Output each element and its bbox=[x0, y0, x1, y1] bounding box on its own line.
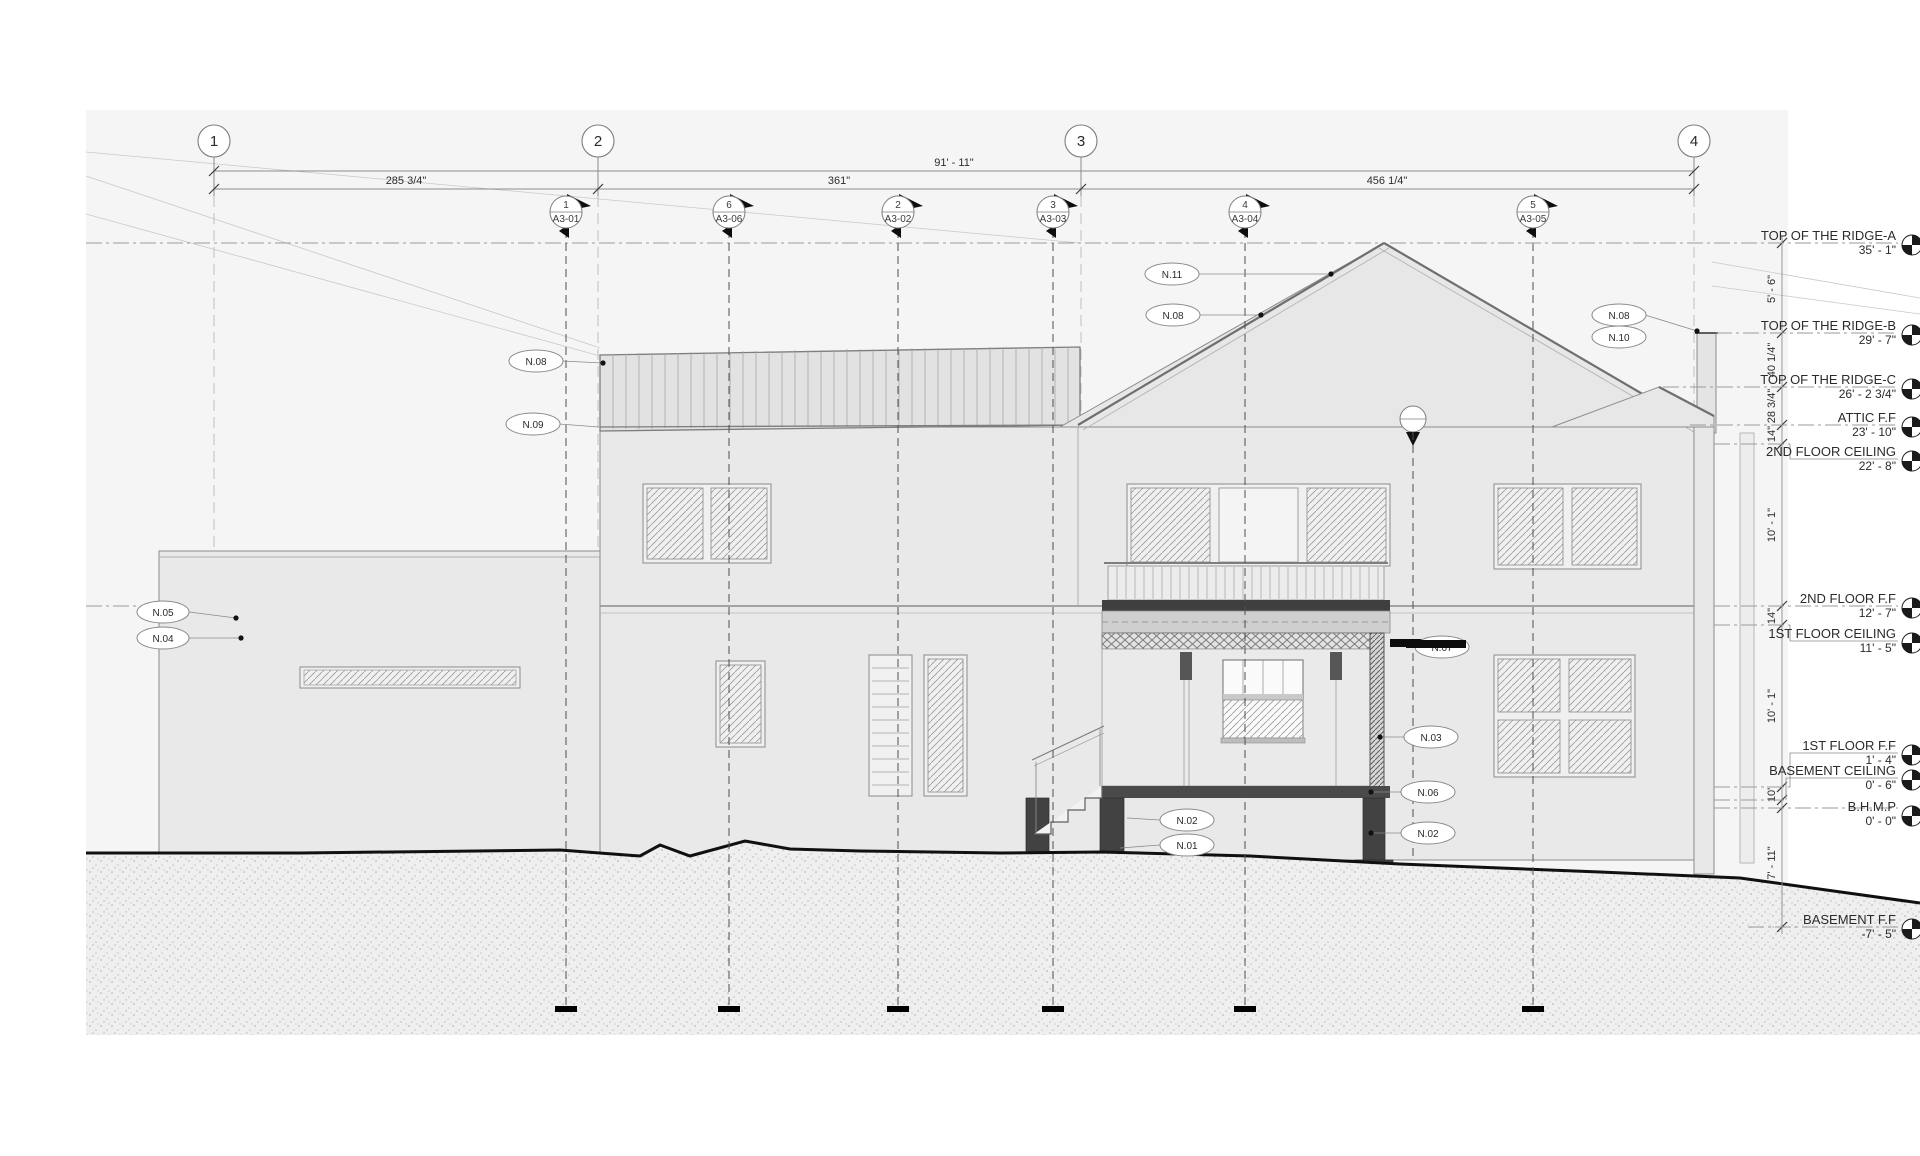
level-target-icon bbox=[1902, 745, 1920, 765]
svg-text:N.05: N.05 bbox=[152, 608, 174, 619]
level-target-icon bbox=[1902, 633, 1920, 653]
level-target-icon bbox=[1902, 806, 1920, 826]
svg-text:N.03: N.03 bbox=[1420, 733, 1442, 744]
svg-text:ATTIC F.F: ATTIC F.F bbox=[1838, 410, 1896, 425]
svg-text:3: 3 bbox=[1050, 200, 1056, 211]
window-1st-left bbox=[716, 661, 765, 747]
elevation-drawing: 91' - 11" 285 3/4" 361" 456 1/4" 1 2 3 4 bbox=[0, 0, 1920, 1156]
svg-text:2ND FLOOR F.F: 2ND FLOOR F.F bbox=[1800, 591, 1896, 606]
level-target-icon bbox=[1902, 919, 1920, 939]
vdim-4: 10' - 1" bbox=[1766, 508, 1778, 542]
vdim-2: 28 3/4" bbox=[1766, 389, 1778, 424]
svg-text:BASEMENT CEILING: BASEMENT CEILING bbox=[1769, 763, 1896, 778]
level-target-icon bbox=[1902, 325, 1920, 345]
svg-text:4: 4 bbox=[1242, 200, 1248, 211]
svg-text:N.02: N.02 bbox=[1417, 829, 1439, 840]
svg-text:35' - 1": 35' - 1" bbox=[1859, 243, 1896, 257]
svg-text:TOP OF THE RIDGE-C: TOP OF THE RIDGE-C bbox=[1760, 372, 1896, 387]
vdim-3: 14" bbox=[1766, 426, 1778, 442]
right-downspout bbox=[1740, 433, 1754, 863]
level-target-icon bbox=[1902, 770, 1920, 790]
overall-dimension: 91' - 11" bbox=[934, 157, 974, 169]
svg-text:N.08: N.08 bbox=[525, 357, 547, 368]
balcony-railing bbox=[1104, 563, 1388, 600]
svg-text:3: 3 bbox=[1077, 133, 1085, 150]
section-room-window bbox=[1221, 660, 1305, 743]
svg-text:2: 2 bbox=[594, 133, 602, 150]
svg-text:A3-05: A3-05 bbox=[1520, 214, 1547, 225]
cut-wall bbox=[1370, 633, 1384, 798]
grid-bubble-2: 2 bbox=[582, 125, 614, 157]
window-1st-right bbox=[1494, 655, 1635, 777]
svg-text:1ST FLOOR F.F: 1ST FLOOR F.F bbox=[1802, 738, 1896, 753]
dimension-seg2: 361" bbox=[828, 175, 850, 187]
svg-text:22' - 8": 22' - 8" bbox=[1859, 459, 1896, 473]
svg-text:0' - 0": 0' - 0" bbox=[1865, 814, 1896, 828]
svg-text:B.H.M.P: B.H.M.P bbox=[1848, 799, 1896, 814]
svg-text:2: 2 bbox=[895, 200, 901, 211]
vdim-0: 5' - 6" bbox=[1766, 275, 1778, 303]
grid-bubble-3: 3 bbox=[1065, 125, 1097, 157]
window-2nd-right bbox=[1494, 484, 1641, 569]
svg-text:1ST FLOOR CEILING: 1ST FLOOR CEILING bbox=[1768, 626, 1896, 641]
svg-text:N.06: N.06 bbox=[1417, 788, 1439, 799]
vdim-5: 14" bbox=[1766, 608, 1778, 624]
svg-text:N.11: N.11 bbox=[1162, 270, 1183, 281]
svg-text:N.01: N.01 bbox=[1176, 841, 1198, 852]
svg-text:11' - 5": 11' - 5" bbox=[1860, 641, 1896, 655]
level-target-icon bbox=[1902, 598, 1920, 618]
svg-text:N.08: N.08 bbox=[1608, 311, 1630, 322]
level-target-icon bbox=[1902, 417, 1920, 437]
svg-text:12' - 7": 12' - 7" bbox=[1859, 606, 1896, 620]
svg-text:1: 1 bbox=[563, 200, 569, 211]
level-target-icon bbox=[1902, 451, 1920, 471]
svg-text:5: 5 bbox=[1530, 200, 1536, 211]
window-2nd-center bbox=[1127, 484, 1390, 566]
svg-text:-7' - 5": -7' - 5" bbox=[1861, 927, 1896, 941]
svg-text:2ND FLOOR CEILING: 2ND FLOOR CEILING bbox=[1766, 444, 1896, 459]
svg-text:A3-02: A3-02 bbox=[885, 214, 912, 225]
level-target-icon bbox=[1902, 235, 1920, 255]
garage-wing bbox=[159, 551, 600, 855]
svg-text:N.02: N.02 bbox=[1176, 816, 1198, 827]
vdim-8: 7' - 11" bbox=[1766, 846, 1778, 879]
svg-text:23' - 10": 23' - 10" bbox=[1852, 425, 1896, 439]
vdim-6: 10' - 1" bbox=[1766, 689, 1778, 723]
grid-bubble-1: 1 bbox=[198, 125, 230, 157]
svg-text:6: 6 bbox=[726, 200, 732, 211]
svg-text:TOP OF THE RIDGE-B: TOP OF THE RIDGE-B bbox=[1761, 318, 1896, 333]
tag-n10-chimney: N.10 bbox=[1592, 326, 1646, 348]
level-target-icon bbox=[1902, 379, 1920, 399]
svg-text:N.08: N.08 bbox=[1162, 311, 1184, 322]
entry-door bbox=[869, 655, 912, 796]
garage-strip-window bbox=[300, 667, 520, 688]
dimension-seg1: 285 3/4" bbox=[386, 175, 427, 187]
svg-text:A3-01: A3-01 bbox=[553, 214, 580, 225]
svg-text:29' - 7": 29' - 7" bbox=[1859, 333, 1896, 347]
svg-text:N.09: N.09 bbox=[522, 420, 544, 431]
svg-text:N.10: N.10 bbox=[1608, 333, 1630, 344]
svg-text:1: 1 bbox=[210, 133, 218, 150]
right-wall bbox=[1694, 427, 1714, 874]
svg-text:TOP OF THE RIDGE-A: TOP OF THE RIDGE-A bbox=[1761, 228, 1896, 243]
svg-text:4: 4 bbox=[1690, 133, 1698, 150]
svg-text:N.04: N.04 bbox=[152, 634, 174, 645]
grid-bubble-4: 4 bbox=[1678, 125, 1710, 157]
svg-text:26' - 2 3/4": 26' - 2 3/4" bbox=[1839, 387, 1896, 401]
window-2nd-left bbox=[643, 484, 771, 563]
svg-text:A3-06: A3-06 bbox=[716, 214, 743, 225]
svg-text:BASEMENT F.F: BASEMENT F.F bbox=[1803, 912, 1896, 927]
entry-sidelite bbox=[924, 655, 967, 796]
metal-roof-band bbox=[600, 347, 1080, 431]
dimension-seg3: 456 1/4" bbox=[1367, 175, 1408, 187]
svg-text:A3-04: A3-04 bbox=[1232, 214, 1259, 225]
svg-text:A3-03: A3-03 bbox=[1040, 214, 1067, 225]
svg-text:0' - 6": 0' - 6" bbox=[1865, 778, 1896, 792]
